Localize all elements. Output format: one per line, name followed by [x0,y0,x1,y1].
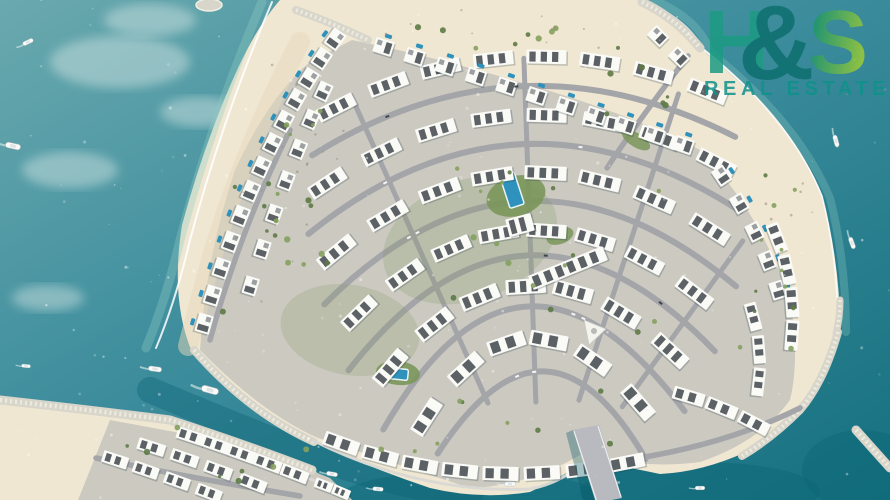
tree [175,425,181,431]
residential-block [523,465,561,482]
tree [563,263,567,267]
tree [284,236,290,242]
residential-block [783,287,800,320]
tree [607,441,613,447]
tree [571,253,575,257]
tree [793,188,797,192]
tree [788,346,794,352]
tree [435,442,439,446]
tree [270,464,276,470]
tree [791,305,796,310]
rocky-islet [196,0,222,11]
tree [666,95,669,98]
tree [763,173,767,177]
tree [657,189,661,193]
tree [513,42,518,47]
tree [240,469,245,474]
tree [378,447,384,453]
tree [607,71,613,77]
car [544,254,548,256]
tree [301,262,306,267]
tree [635,329,641,335]
tree [305,197,311,203]
tree [289,133,293,137]
residential-block [524,165,568,182]
tree [760,238,763,241]
car [514,85,518,87]
tree [309,203,314,208]
tree [780,269,784,273]
tree [783,284,787,288]
tree [551,186,555,190]
tree [144,449,150,455]
tree [440,27,446,33]
tree [265,229,269,233]
tree [273,233,278,238]
tree [413,449,417,453]
tree [479,190,482,193]
residential-block [482,466,520,483]
tree [662,102,668,108]
tree [780,248,784,252]
tree [455,166,459,170]
tree [738,345,743,350]
scene-stage: H & S REAL ESTATE [0,0,890,500]
tree [266,181,271,186]
tree [325,260,330,265]
tree [311,123,315,127]
tree [548,307,554,313]
tree [526,32,531,37]
tree [505,421,509,425]
tree [505,260,511,266]
tree [319,251,325,257]
aerial-render [0,0,890,500]
tree [276,192,280,196]
residential-block [750,335,766,366]
residential-block [526,49,568,65]
tree [318,109,323,114]
tree [262,204,267,209]
tree [772,203,777,208]
tree [604,111,609,116]
tree [451,295,457,301]
tree [473,46,478,51]
tree [284,122,290,128]
tree [218,475,221,478]
tree [753,309,757,313]
tree [616,46,620,50]
tree [236,478,242,484]
tree [536,35,542,41]
tree [500,180,504,184]
tree [125,444,129,448]
tree [303,446,309,452]
tree [535,428,540,433]
tree [415,24,421,30]
tree [220,309,226,315]
tree [652,319,657,324]
tree [457,399,462,404]
tree [639,64,645,70]
tree [233,185,237,189]
tree [274,218,279,223]
tree [598,388,603,393]
tree [508,170,512,174]
tree [754,290,757,293]
tree [285,260,291,266]
tree [494,241,499,246]
tree [471,234,477,240]
tree [531,283,536,288]
